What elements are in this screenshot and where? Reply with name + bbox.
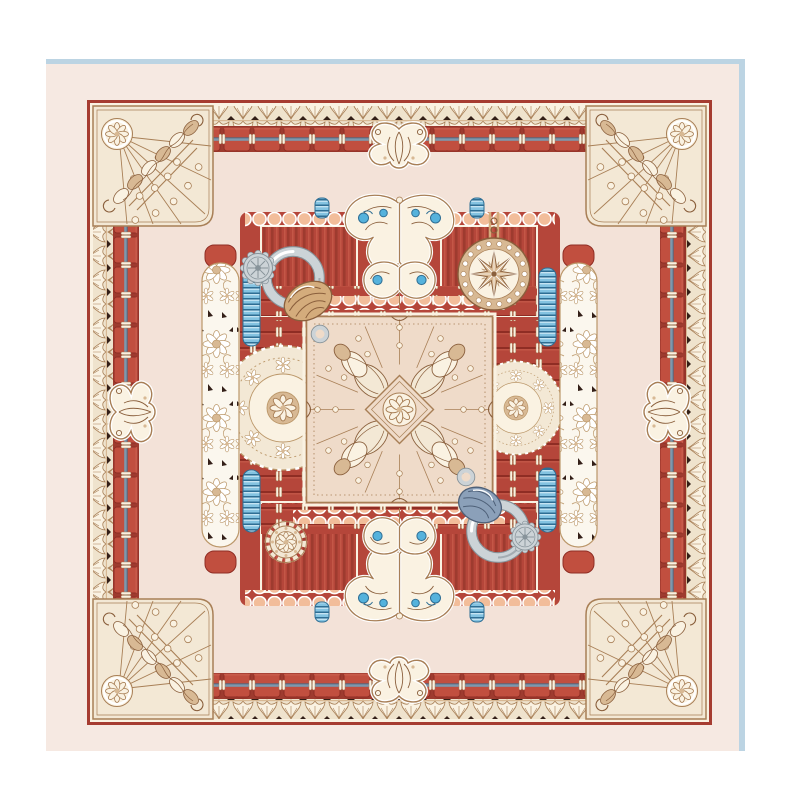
center-star-flower xyxy=(386,396,413,423)
central-square-panel xyxy=(304,314,495,505)
cartouche-bottom xyxy=(369,657,428,702)
cartouche-right xyxy=(644,382,689,441)
center-cluster xyxy=(202,195,597,622)
scarf-artwork xyxy=(87,100,712,725)
lace-band-right xyxy=(560,245,597,573)
cartouche-top xyxy=(369,123,428,168)
page-canvas xyxy=(0,0,800,800)
photo-frame-line-right xyxy=(739,59,745,751)
photo-frame-line-top xyxy=(46,59,745,64)
corner-fan-bottom-left xyxy=(93,599,213,719)
corner-fan-bottom-right xyxy=(586,599,706,719)
corner-fan-top-right xyxy=(586,106,706,226)
cartouche-left xyxy=(110,382,155,441)
lace-band-left xyxy=(202,245,239,573)
rosette-wheel xyxy=(266,522,307,563)
corner-fan-top-left xyxy=(93,106,213,226)
